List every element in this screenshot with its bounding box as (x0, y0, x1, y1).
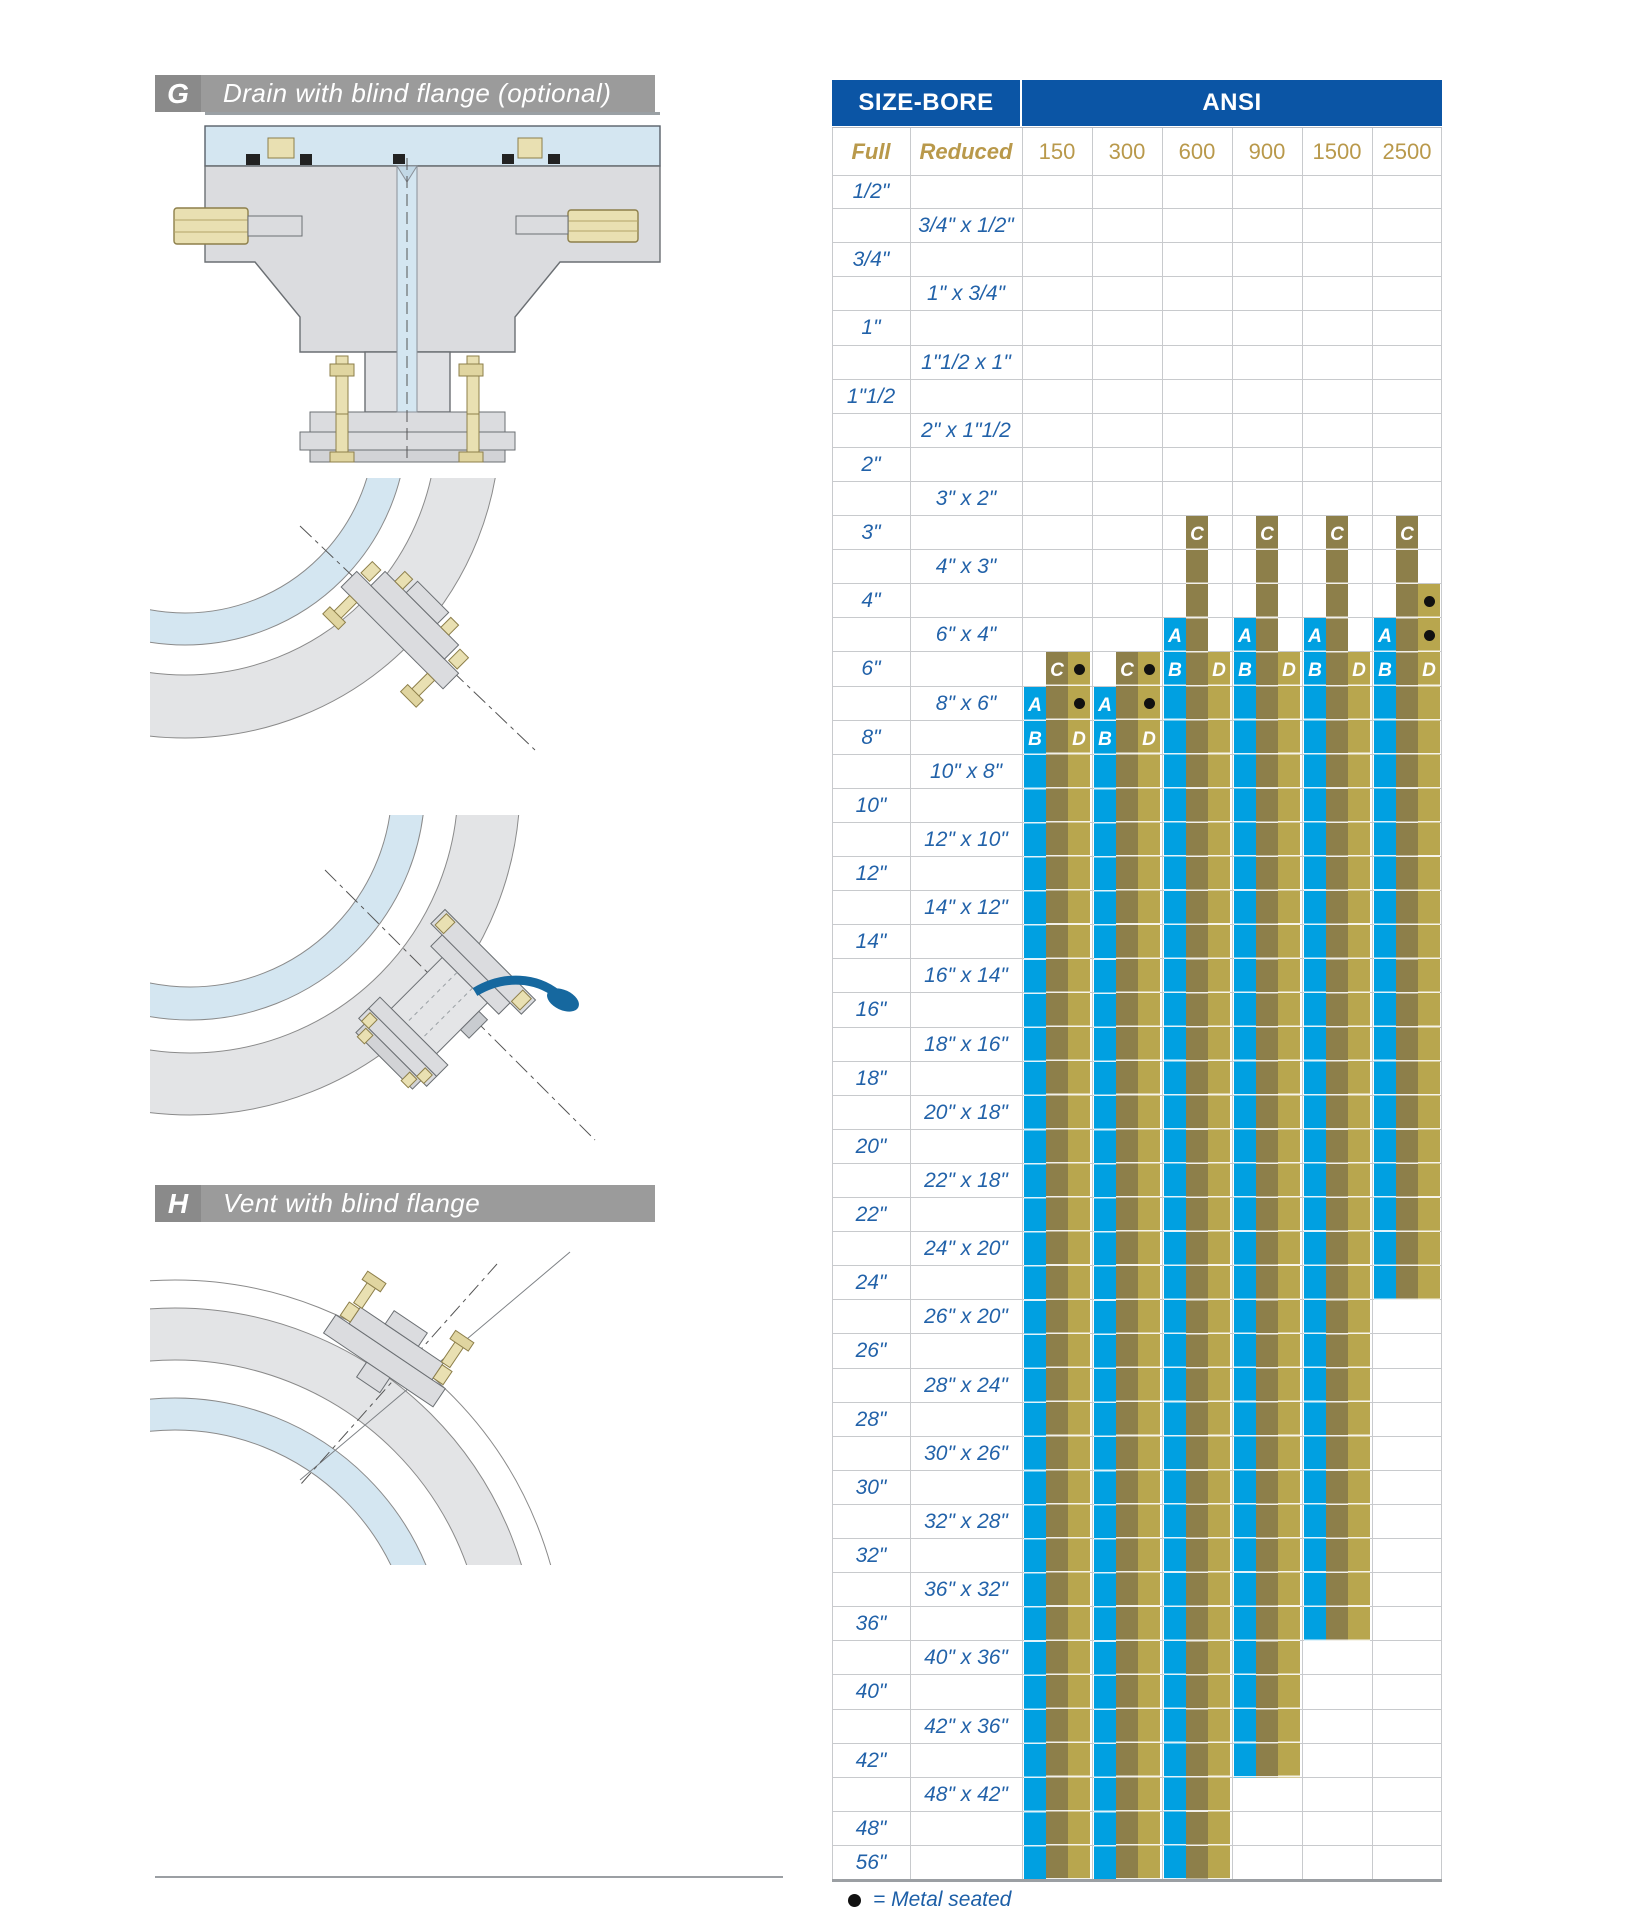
size-row-label: 1" (832, 311, 910, 345)
bar-c-900 (1256, 516, 1278, 1778)
bar-letter-c-300: C (1116, 657, 1138, 691)
bar-ab-2500 (1374, 618, 1396, 1300)
size-row-label: 32" x 28" (910, 1505, 1022, 1539)
size-row-label: 26" x 20" (910, 1300, 1022, 1334)
column-grid-line (1092, 128, 1093, 1880)
size-bore-header: SIZE-BORE (832, 80, 1020, 126)
bar-letter-d-2500: D (1418, 657, 1440, 691)
subheader-class-900: 900 (1232, 128, 1302, 175)
bar-letter-a-150: A (1024, 692, 1046, 726)
size-row-label: 30" x 26" (910, 1437, 1022, 1471)
left-footer-rule (155, 1876, 783, 1878)
bar-letter-d-900: D (1278, 657, 1300, 691)
column-grid-line (1302, 128, 1303, 1880)
bar-d-2500 (1418, 584, 1440, 1300)
size-row-label: 30" (832, 1471, 910, 1505)
bar-letter-b-150: B (1024, 726, 1046, 760)
size-row-label: 42" x 36" (910, 1710, 1022, 1744)
size-row-label: 20" (832, 1130, 910, 1164)
bar-letter-b-1500: B (1304, 657, 1326, 691)
size-row-label: 12" x 10" (910, 823, 1022, 857)
panel-h-title-text: Vent with blind flange (223, 1188, 480, 1219)
size-row-label: 24" x 20" (910, 1232, 1022, 1266)
subheader-class-2500: 2500 (1372, 128, 1442, 175)
bar-d-900 (1278, 652, 1300, 1777)
pipe-top-line (205, 112, 660, 115)
size-row-label: 14" x 12" (910, 891, 1022, 925)
size-row-label: 1" x 3/4" (910, 277, 1022, 311)
metal-seated-dot-icon (848, 1894, 861, 1907)
size-row-label: 1/2" (832, 175, 910, 209)
drawing-drain-valve (150, 815, 610, 1145)
size-row-label: 26" (832, 1334, 910, 1368)
size-row-label: 3/4" (832, 243, 910, 277)
size-row-label: 6" x 4" (910, 618, 1022, 652)
column-grid-line (1372, 128, 1373, 1880)
bar-ab-900 (1234, 618, 1256, 1777)
metal-seated-dot (1144, 698, 1155, 709)
drawing-drain-flange-detail (150, 478, 550, 753)
size-row-label: 4" x 3" (910, 550, 1022, 584)
column-grid-line (1162, 128, 1163, 1880)
bar-c-300 (1116, 652, 1138, 1880)
metal-seated-dot (1074, 698, 1085, 709)
drawing-vent-blind-flange (150, 1240, 580, 1565)
size-row-label: 40" (832, 1675, 910, 1709)
bar-c-2500 (1396, 516, 1418, 1300)
metal-seated-legend-text: = Metal seated (873, 1888, 1011, 1912)
bar-letter-b-600: B (1164, 657, 1186, 691)
bar-letter-a-300: A (1094, 692, 1116, 726)
subheader-reduced: Reduced (910, 128, 1022, 175)
bar-ab-1500 (1304, 618, 1326, 1641)
ansi-header-text: ANSI (1202, 89, 1261, 117)
size-bore-ansi-table: SIZE-BORE ANSI Full Reduced 150300600900… (832, 80, 1442, 1880)
bar-letter-a-1500: A (1304, 623, 1326, 657)
size-row-label: 16" x 14" (910, 959, 1022, 993)
size-row-label: 2" x 1"1/2 (910, 414, 1022, 448)
size-row-label: 8" (832, 721, 910, 755)
bar-letter-c-2500: C (1396, 521, 1418, 555)
panel-g-title-text: Drain with blind flange (optional) (223, 78, 611, 109)
size-row-label: 18" (832, 1062, 910, 1096)
bar-d-600 (1208, 652, 1230, 1880)
row-grid-line (832, 175, 1442, 176)
panel-g-title: Drain with blind flange (optional) (207, 75, 669, 112)
size-row-label: 12" (832, 857, 910, 891)
bar-ab-300 (1094, 687, 1116, 1881)
subheader-class-600: 600 (1162, 128, 1232, 175)
bar-letter-c-600: C (1186, 521, 1208, 555)
bar-letter-d-1500: D (1348, 657, 1370, 691)
size-row-label: 16" (832, 993, 910, 1027)
valve-body-section (205, 166, 660, 352)
bar-letter-a-900: A (1234, 623, 1256, 657)
size-row-label: 28" (832, 1403, 910, 1437)
size-row-label: 48" x 42" (910, 1778, 1022, 1812)
bar-letter-a-2500: A (1374, 623, 1396, 657)
size-row-label: 3" (832, 516, 910, 550)
column-grid-line (1232, 128, 1233, 1880)
size-row-label: 1"1/2 x 1" (910, 346, 1022, 380)
metal-seated-dot (1144, 664, 1155, 675)
column-grid-line (1022, 128, 1023, 1880)
column-grid-line (1441, 128, 1442, 1880)
subheader-class-150: 150 (1022, 128, 1092, 175)
table-bottom-rule (832, 1879, 1442, 1882)
bar-c-600 (1186, 516, 1208, 1880)
bar-letter-b-900: B (1234, 657, 1256, 691)
bar-ab-150 (1024, 687, 1046, 1881)
subheader-top-line (832, 127, 1442, 128)
panel-h-letter-text: H (168, 1188, 188, 1220)
bar-letter-d-300: D (1138, 726, 1160, 760)
panel-g-letter-text: G (167, 78, 189, 110)
size-row-label: 18" x 16" (910, 1028, 1022, 1062)
size-row-label: 36" x 32" (910, 1573, 1022, 1607)
size-row-label: 3" x 2" (910, 482, 1022, 516)
bar-letter-d-150: D (1068, 726, 1090, 760)
bar-letter-a-600: A (1164, 623, 1186, 657)
bar-ab-600 (1164, 618, 1186, 1880)
size-row-label: 3/4" x 1/2" (910, 209, 1022, 243)
metal-seated-dot (1074, 664, 1085, 675)
panel-h-letter: H (155, 1185, 201, 1222)
bar-d-300 (1138, 652, 1160, 1880)
bar-d-1500 (1348, 652, 1370, 1641)
size-row-label: 6" (832, 652, 910, 686)
size-row-label: 40" x 36" (910, 1641, 1022, 1675)
size-row-label: 28" x 24" (910, 1369, 1022, 1403)
metal-seated-dot (1424, 630, 1435, 641)
size-row-label: 1"1/2 (832, 380, 910, 414)
column-grid-line (910, 128, 911, 1880)
ansi-header: ANSI (1022, 80, 1442, 126)
bar-letter-d-600: D (1208, 657, 1230, 691)
size-row-label: 8" x 6" (910, 687, 1022, 721)
panel-h-title: Vent with blind flange (207, 1185, 669, 1222)
metal-seated-dot (1424, 596, 1435, 607)
bar-letter-c-150: C (1046, 657, 1068, 691)
bar-letter-b-300: B (1094, 726, 1116, 760)
size-row-label: 36" (832, 1607, 910, 1641)
size-row-label: 22" (832, 1198, 910, 1232)
bar-c-150 (1046, 652, 1068, 1880)
size-row-label: 10" (832, 789, 910, 823)
metal-seated-legend: = Metal seated (848, 1888, 1011, 1912)
bar-letter-b-2500: B (1374, 657, 1396, 691)
bar-letter-c-1500: C (1326, 521, 1348, 555)
size-bore-header-text: SIZE-BORE (858, 89, 993, 117)
size-row-label: 14" (832, 925, 910, 959)
size-row-label: 56" (832, 1846, 910, 1880)
size-row-label: 2" (832, 448, 910, 482)
size-row-label: 42" (832, 1744, 910, 1778)
size-row-label: 22" x 18" (910, 1164, 1022, 1198)
subheader-class-1500: 1500 (1302, 128, 1372, 175)
panel-g-letter: G (155, 75, 201, 112)
size-row-label: 32" (832, 1539, 910, 1573)
size-row-label: 48" (832, 1812, 910, 1846)
bar-c-1500 (1326, 516, 1348, 1641)
drawing-drain-blind-flange (150, 112, 665, 464)
subheader-full: Full (832, 128, 910, 175)
size-row-label: 20" x 18" (910, 1096, 1022, 1130)
subheader-class-300: 300 (1092, 128, 1162, 175)
size-row-label: 24" (832, 1266, 910, 1300)
bar-letter-c-900: C (1256, 521, 1278, 555)
bar-d-150 (1068, 652, 1090, 1880)
size-row-label: 10" x 8" (910, 755, 1022, 789)
size-row-label: 4" (832, 584, 910, 618)
